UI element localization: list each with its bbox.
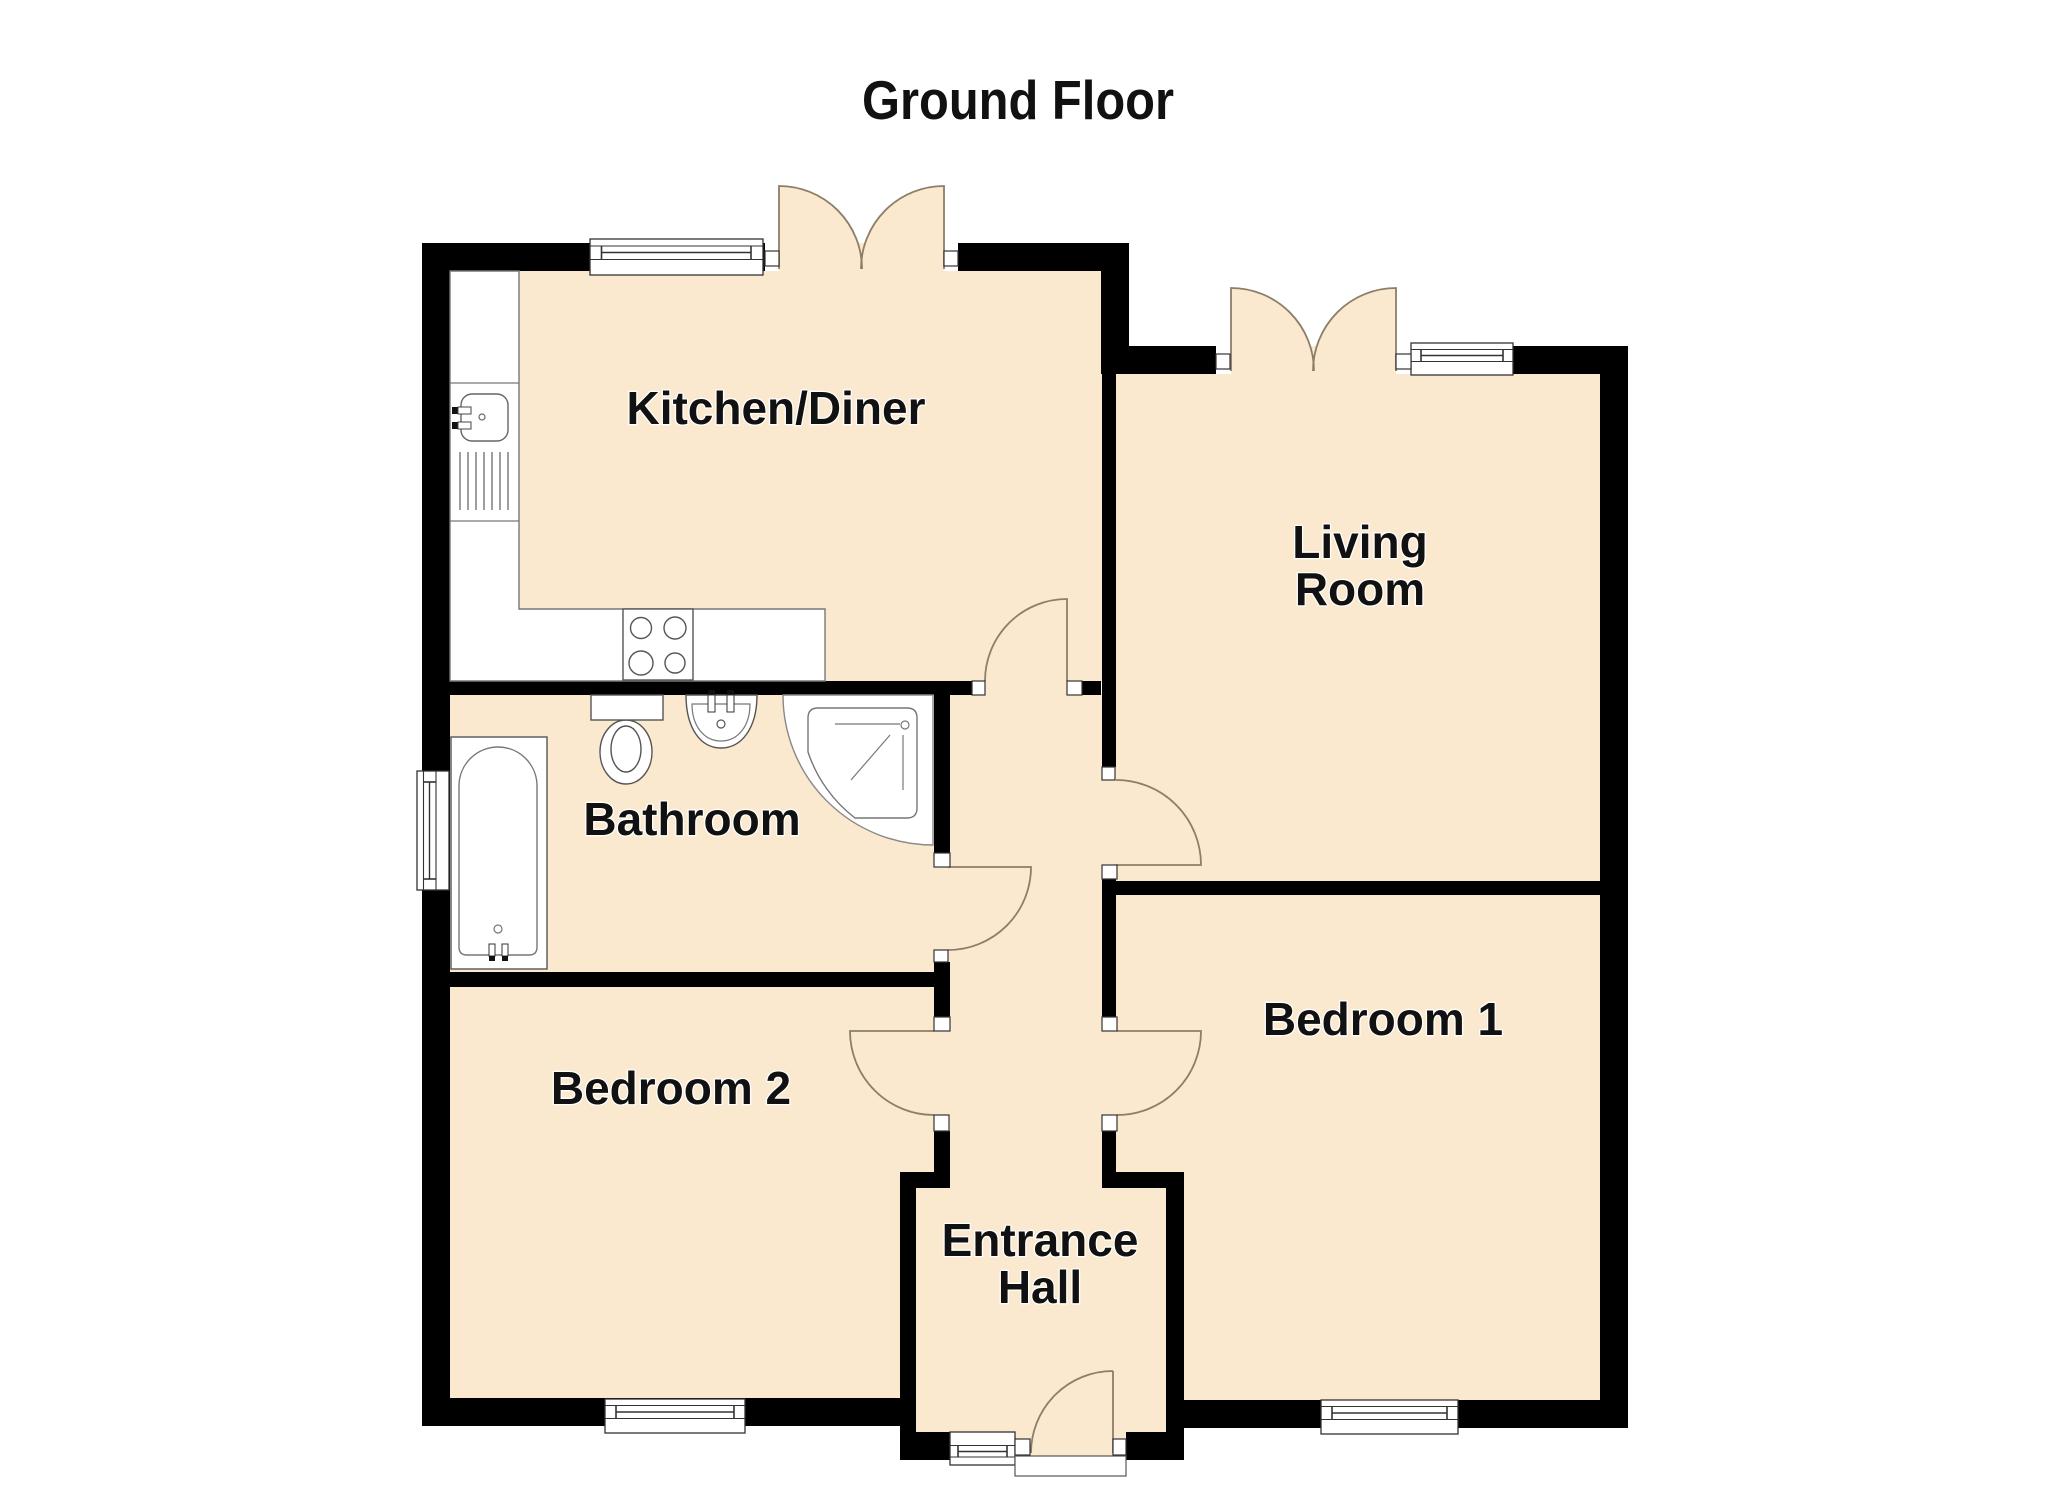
svg-text:Kitchen/Diner: Kitchen/Diner xyxy=(626,382,925,434)
svg-text:Living: Living xyxy=(1292,516,1427,568)
svg-text:Entrance: Entrance xyxy=(942,1214,1139,1266)
svg-text:Ground Floor: Ground Floor xyxy=(862,69,1174,131)
svg-text:Hall: Hall xyxy=(998,1261,1082,1313)
svg-text:Bathroom: Bathroom xyxy=(583,793,800,845)
svg-text:Room: Room xyxy=(1295,563,1425,615)
svg-text:Bedroom 2: Bedroom 2 xyxy=(551,1062,791,1114)
svg-text:Bedroom 1: Bedroom 1 xyxy=(1263,993,1503,1045)
